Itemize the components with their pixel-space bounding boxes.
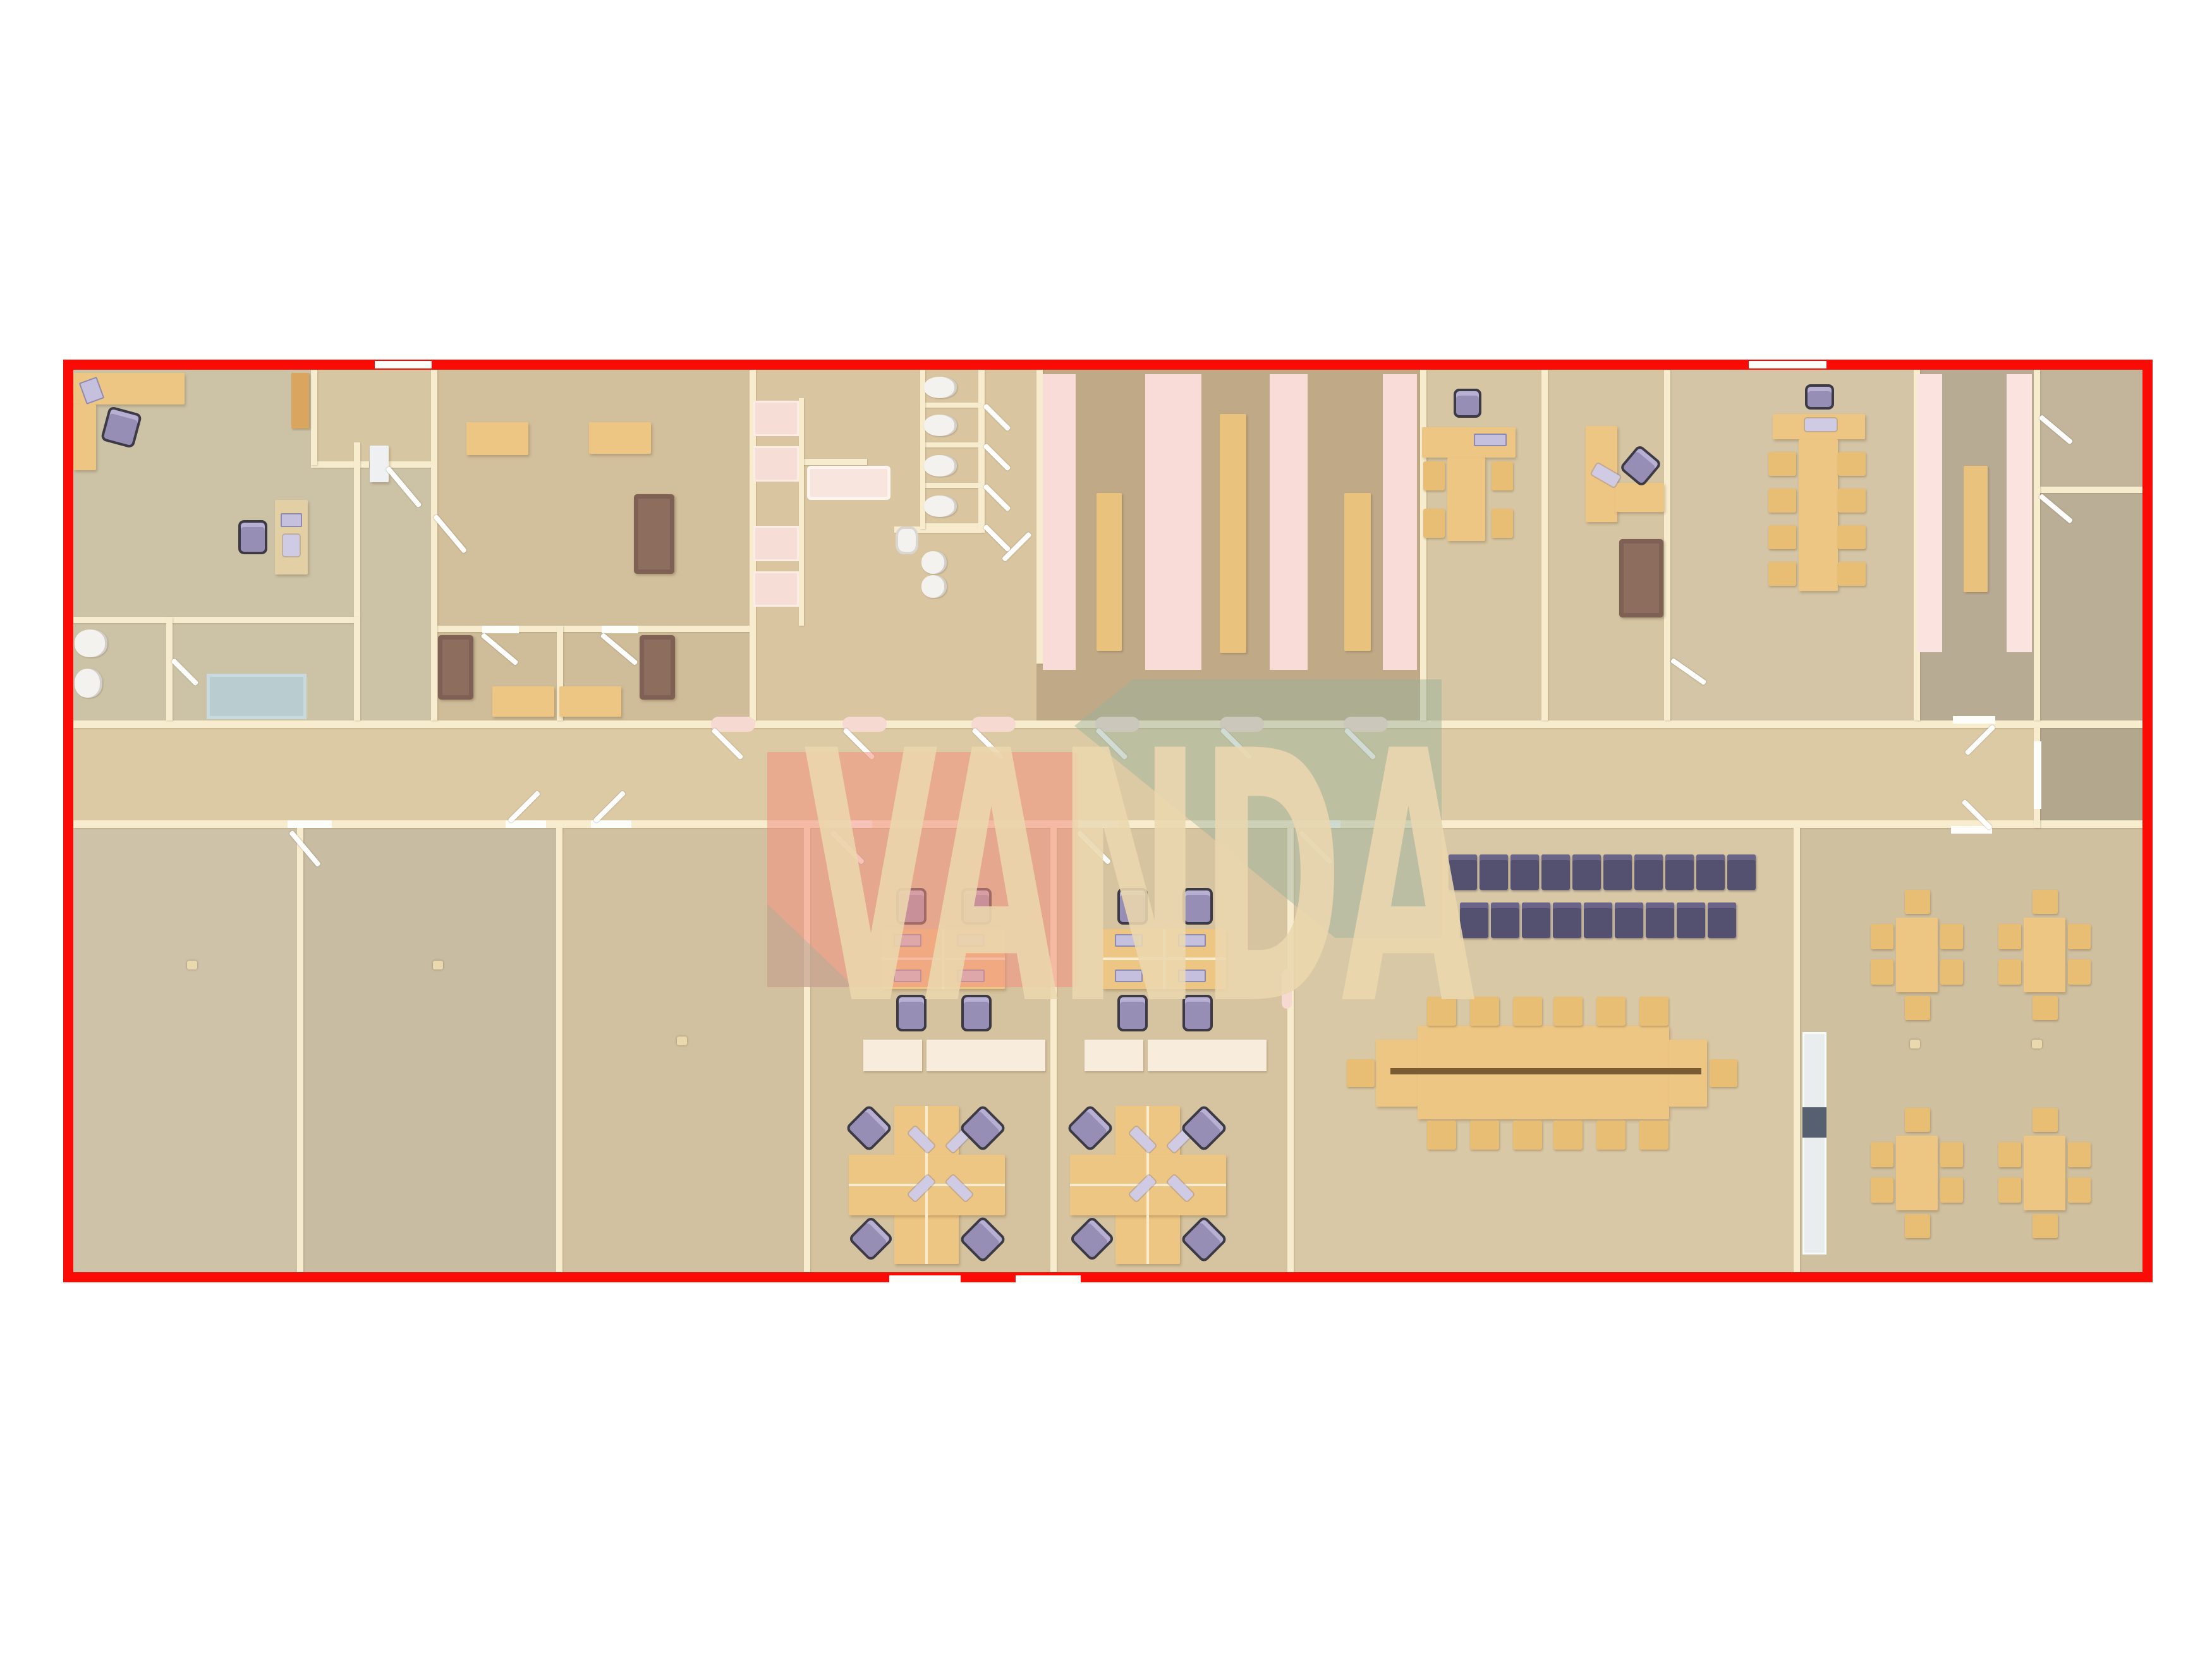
changing-hall-left-wall — [1036, 370, 1043, 664]
exec-l-desk-side — [73, 404, 96, 470]
office2-left-wall — [1541, 370, 1548, 720]
pink-stripe-4 — [1383, 374, 1417, 670]
office1-monitor — [1474, 434, 1507, 446]
lounge-seat-r1-4 — [1541, 854, 1570, 890]
lounge-seat-r2-2 — [1491, 902, 1519, 938]
vanda-watermark-text: VANDA — [804, 707, 1473, 1053]
hall-bench-2 — [1220, 414, 1246, 653]
threshold-top-border-2 — [1749, 361, 1826, 368]
conference-chair-t4 — [1553, 997, 1583, 1026]
exec-wc-toilet — [75, 629, 107, 657]
closet-bottom-wall-l — [311, 461, 369, 468]
lounge-seat-r2-3 — [1522, 902, 1550, 938]
ceiling-dot-dining-2 — [2032, 1040, 2042, 1048]
ceiling-dot-b3 — [677, 1036, 687, 1045]
meeting-guest-l3 — [1768, 525, 1796, 549]
dt2-chair-l1 — [1998, 924, 2021, 949]
ceiling-dot-b1 — [187, 961, 197, 969]
wc-room-wall — [166, 617, 173, 720]
conference-chair-t6 — [1639, 997, 1668, 1026]
room-ab-divider — [2034, 487, 2142, 493]
dt3-chair-r1 — [1940, 1142, 1963, 1167]
pink-stripe-5 — [1917, 374, 1942, 652]
kitchen-appliance — [1802, 1107, 1826, 1138]
dt2-chair-t — [2033, 890, 2058, 914]
hall-bench-3 — [1344, 493, 1371, 651]
shower-tray-4 — [753, 571, 799, 607]
blue-table — [207, 674, 307, 719]
lounge-seat-r1-10 — [1727, 854, 1756, 890]
lounge-seat-r2-4 — [1553, 902, 1581, 938]
exec-side-monitor — [281, 513, 302, 527]
conference-chair-t3 — [1513, 997, 1542, 1026]
lounge-seat-r1-6 — [1603, 854, 1632, 890]
threshold-vestibule-double-door — [2034, 741, 2041, 809]
threshold-changing2 — [1953, 716, 1995, 724]
dt1-chair-l2 — [1871, 959, 1893, 985]
office1-guest-3 — [1492, 461, 1513, 490]
meeting-guest-r3 — [1838, 525, 1866, 549]
dt4-chair-l1 — [1998, 1142, 2021, 1167]
meeting-desk-stem — [1799, 439, 1838, 591]
vestibule-floor — [2040, 728, 2142, 820]
lounge-seat-r1-2 — [1480, 854, 1508, 890]
meeting-guest-l1 — [1768, 452, 1796, 476]
dt2-chair-l2 — [1998, 959, 2021, 985]
exec-side-chair — [238, 520, 267, 554]
ceiling-dot-dining-1 — [1910, 1040, 1920, 1048]
dt3-chair-t — [1905, 1108, 1930, 1132]
exec-hall-wall-lower — [354, 617, 360, 720]
dt1-chair-l1 — [1871, 924, 1893, 949]
floor-plan-render: VANDA — [0, 0, 2212, 1659]
big-room-desk-1 — [466, 422, 528, 455]
dt2-chair-r1 — [2068, 924, 2091, 949]
dt1-chair-b — [1905, 996, 1930, 1020]
small-room2-sofa — [640, 635, 675, 700]
conference-chair-b3 — [1513, 1121, 1542, 1150]
lounge-seat-r2-5 — [1584, 902, 1612, 938]
shower-tray-1 — [753, 401, 799, 436]
office2-desk-h — [1615, 483, 1664, 512]
room-b2-floor — [297, 828, 556, 1272]
meeting-guest-r2 — [1838, 489, 1866, 513]
dining-table-4 — [2024, 1136, 2065, 1210]
stall-divider-1 — [920, 403, 978, 408]
dt1-chair-r1 — [1940, 924, 1963, 949]
conference-chair-b4 — [1553, 1121, 1583, 1150]
bidet-1 — [921, 551, 947, 574]
room-b1-floor — [73, 828, 297, 1272]
big-room-floor — [432, 370, 750, 626]
conference-chair-b2 — [1470, 1121, 1499, 1150]
pink-stripe-6 — [2007, 374, 2032, 652]
meeting-left-wall — [1664, 370, 1670, 720]
office1-left-wall — [1420, 370, 1426, 720]
threshold-bottom-border-2 — [1016, 1275, 1081, 1283]
dt3-chair-l2 — [1871, 1177, 1893, 1203]
lounge-seat-r2-7 — [1646, 902, 1674, 938]
b1-b2-wall — [297, 828, 303, 1272]
dt1-chair-r2 — [1940, 959, 1963, 985]
lounge-seat-r2-8 — [1677, 902, 1705, 938]
conference-chair-t5 — [1596, 997, 1626, 1026]
dt3-chair-b — [1905, 1214, 1930, 1238]
exec-wc-bidet — [75, 669, 102, 698]
dining-floor — [1794, 828, 2142, 1272]
b2-b3-wall — [556, 828, 562, 1272]
threshold-b2 — [288, 820, 332, 828]
office1-guest-1 — [1423, 461, 1445, 490]
dt4-chair-t — [2033, 1108, 2058, 1132]
wc-stall-door-wall — [978, 370, 985, 533]
office1-floor — [1420, 370, 1541, 720]
dining-table-3 — [1896, 1136, 1938, 1210]
dt1-chair-t — [1905, 890, 1930, 914]
dt4-chair-l2 — [1998, 1177, 2021, 1203]
conference-chair-b5 — [1596, 1121, 1626, 1150]
wc-toilet-4 — [924, 495, 957, 517]
lounge-seat-r1-3 — [1510, 854, 1539, 890]
lounge-seat-r2-6 — [1615, 902, 1643, 938]
changing2-bench — [1964, 466, 1988, 592]
corridor-sill-1 — [711, 717, 755, 732]
dining-table-1 — [1896, 918, 1938, 992]
dining-table-2 — [2024, 918, 2065, 992]
exec-side-kb — [283, 535, 300, 556]
meeting-guest-l4 — [1768, 562, 1796, 586]
lounge-seat-r1-8 — [1665, 854, 1694, 890]
meeting-chair-head — [1805, 384, 1834, 410]
threshold-small-room1 — [482, 626, 519, 633]
office1-desk-stem — [1447, 458, 1485, 541]
office1-guest-4 — [1492, 509, 1513, 538]
stall-divider-3 — [920, 483, 978, 488]
dt4-chair-r2 — [2068, 1177, 2091, 1203]
lounge-seat-r1-7 — [1634, 854, 1663, 890]
closet-bottom-wall-r — [387, 461, 431, 468]
lounge-dining-wall — [1794, 828, 1800, 1272]
dt4-chair-r1 — [2068, 1142, 2091, 1167]
threshold-bottom-border-1 — [889, 1275, 961, 1283]
closet-cabinet — [291, 373, 309, 428]
small-room2-desk — [559, 686, 621, 717]
shower-tray-2 — [753, 446, 799, 482]
meeting-guest-l2 — [1768, 489, 1796, 513]
exec-lower-wall — [73, 617, 356, 623]
shower-tray-3 — [753, 526, 799, 561]
lounge-seat-r2-9 — [1708, 902, 1736, 938]
conference-chair-end-r — [1710, 1059, 1737, 1087]
office2-sofa — [1619, 539, 1663, 617]
stall-divider-2 — [920, 442, 978, 447]
closet-left-wall — [311, 370, 317, 465]
shower-column-wall — [799, 398, 804, 626]
small-room1-sofa — [438, 635, 473, 700]
office1-chair — [1454, 389, 1481, 418]
dt2-chair-b — [2033, 996, 2058, 1020]
dt3-chair-l1 — [1871, 1142, 1893, 1167]
ceiling-dot-b2 — [433, 961, 443, 969]
bathtub — [807, 466, 890, 500]
room-ab-left-wall — [2034, 370, 2040, 720]
meeting-kb — [1805, 418, 1837, 431]
threshold-small-room2 — [602, 626, 638, 633]
kitchen-counter — [1802, 1032, 1826, 1255]
pink-stripe-2 — [1145, 374, 1201, 670]
wc-toilet-2 — [924, 415, 957, 436]
bath-sink — [896, 526, 918, 554]
big-room-desk-2 — [589, 422, 651, 454]
conference-chair-b6 — [1639, 1121, 1668, 1150]
threshold-top-border-1 — [375, 361, 432, 368]
exec-hall-wall-upper — [354, 442, 360, 617]
office1-guest-2 — [1423, 509, 1445, 538]
small-room1-desk — [492, 686, 554, 717]
conference-chair-t2 — [1470, 997, 1499, 1026]
dt4-chair-b — [2033, 1214, 2058, 1238]
room-b-floor — [2034, 487, 2142, 720]
conference-chair-b1 — [1427, 1121, 1456, 1150]
big-room-sofa — [634, 494, 674, 574]
big-room-bottom-wall — [432, 626, 750, 632]
wc-toilet-1 — [924, 377, 957, 398]
pink-stripe-3 — [1270, 374, 1308, 670]
meeting-guest-r4 — [1838, 562, 1866, 586]
meeting-guest-r1 — [1838, 452, 1866, 476]
printer-desk — [370, 446, 389, 482]
bidet-2 — [921, 575, 947, 598]
big-room-left-wall — [431, 370, 437, 720]
dt2-chair-r2 — [2068, 959, 2091, 985]
hall-bench-1 — [1097, 493, 1122, 651]
pink-stripe-1 — [1043, 374, 1076, 670]
lounge-seat-r1-5 — [1572, 854, 1601, 890]
wc-toilet-3 — [924, 455, 957, 477]
dt3-chair-r2 — [1940, 1177, 1963, 1203]
lounge-seat-r1-9 — [1696, 854, 1725, 890]
